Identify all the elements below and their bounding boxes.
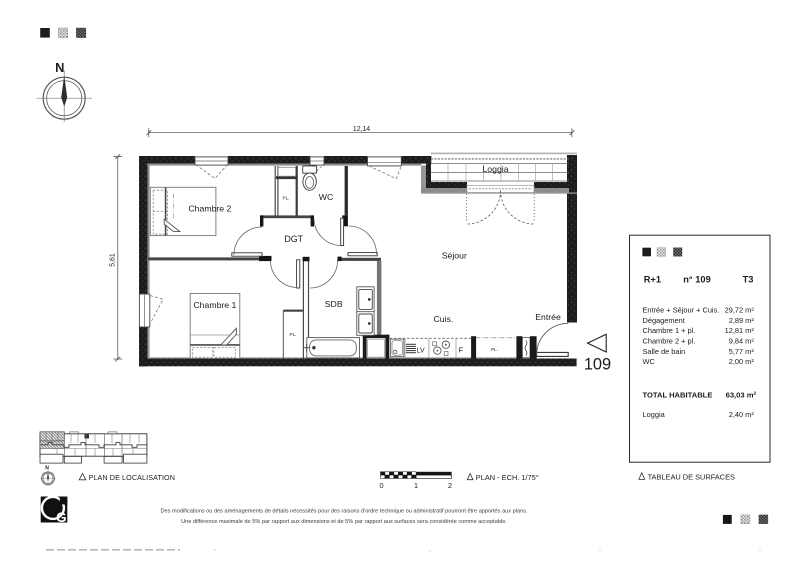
svg-text:29,72 m²: 29,72 m² xyxy=(725,306,755,315)
svg-text:63,03 m²: 63,03 m² xyxy=(726,390,757,399)
svg-text:Entrée + Séjour + Cuis.: Entrée + Séjour + Cuis. xyxy=(643,306,720,315)
svg-text:Loggia: Loggia xyxy=(643,410,666,419)
svg-text:Chambre 1: Chambre 1 xyxy=(193,300,236,310)
svg-text:WC: WC xyxy=(643,357,656,366)
svg-text:PLAN - ECH. 1/75°: PLAN - ECH. 1/75° xyxy=(476,473,539,482)
svg-text:5,77 m²: 5,77 m² xyxy=(729,347,755,356)
svg-text:0: 0 xyxy=(379,481,383,490)
svg-text:Dégagement: Dégagement xyxy=(643,316,685,325)
svg-text:WC: WC xyxy=(319,192,333,202)
svg-text:Entrée: Entrée xyxy=(535,312,561,322)
svg-text:Séjour: Séjour xyxy=(442,251,467,261)
svg-text:F: F xyxy=(459,345,464,354)
svg-text:Cuis.: Cuis. xyxy=(434,314,454,324)
svg-text:R+1: R+1 xyxy=(644,274,661,284)
svg-text:2: 2 xyxy=(448,481,452,490)
svg-text:Chambre 2: Chambre 2 xyxy=(188,204,231,214)
svg-text:12,14: 12,14 xyxy=(353,126,370,133)
svg-text:12,81 m²: 12,81 m² xyxy=(725,326,755,335)
svg-text:PLAN DE LOCALISATION: PLAN DE LOCALISATION xyxy=(89,473,176,482)
svg-text:PL.: PL. xyxy=(491,347,498,352)
svg-text:TOTAL HABITABLE: TOTAL HABITABLE xyxy=(643,390,713,399)
svg-text:N: N xyxy=(55,60,64,75)
svg-text:n° 109: n° 109 xyxy=(683,274,711,284)
svg-text:PL.: PL. xyxy=(283,195,290,200)
svg-text:T3: T3 xyxy=(743,274,754,284)
svg-text:Des modifications ou des aména: Des modifications ou des aménagements de… xyxy=(160,508,527,514)
svg-text:SDB: SDB xyxy=(325,299,343,309)
svg-text:109: 109 xyxy=(584,356,611,374)
svg-text:2,89 m²: 2,89 m² xyxy=(729,316,755,325)
svg-text:TABLEAU DE SURFACES: TABLEAU DE SURFACES xyxy=(648,473,735,482)
svg-text:Une différence maximale de 5%: Une différence maximale de 5% par rappor… xyxy=(181,519,507,525)
svg-text:1: 1 xyxy=(414,481,418,490)
svg-text:Chambre 2 + pl.: Chambre 2 + pl. xyxy=(643,337,696,346)
svg-text:LV: LV xyxy=(417,348,425,355)
svg-text:Chambre 1 + pl.: Chambre 1 + pl. xyxy=(643,326,696,335)
svg-text:Salle de bain: Salle de bain xyxy=(643,347,686,356)
svg-text:DGT: DGT xyxy=(284,234,303,244)
svg-text:N: N xyxy=(45,466,49,472)
svg-text:5,61: 5,61 xyxy=(110,253,117,267)
svg-text:G: G xyxy=(56,510,66,525)
svg-text:9,84 m²: 9,84 m² xyxy=(729,337,755,346)
svg-text:Loggia: Loggia xyxy=(482,164,508,174)
svg-text:2,00 m²: 2,00 m² xyxy=(729,357,755,366)
svg-text:2,40 m²: 2,40 m² xyxy=(729,410,755,419)
svg-text:PL.: PL. xyxy=(290,332,297,337)
